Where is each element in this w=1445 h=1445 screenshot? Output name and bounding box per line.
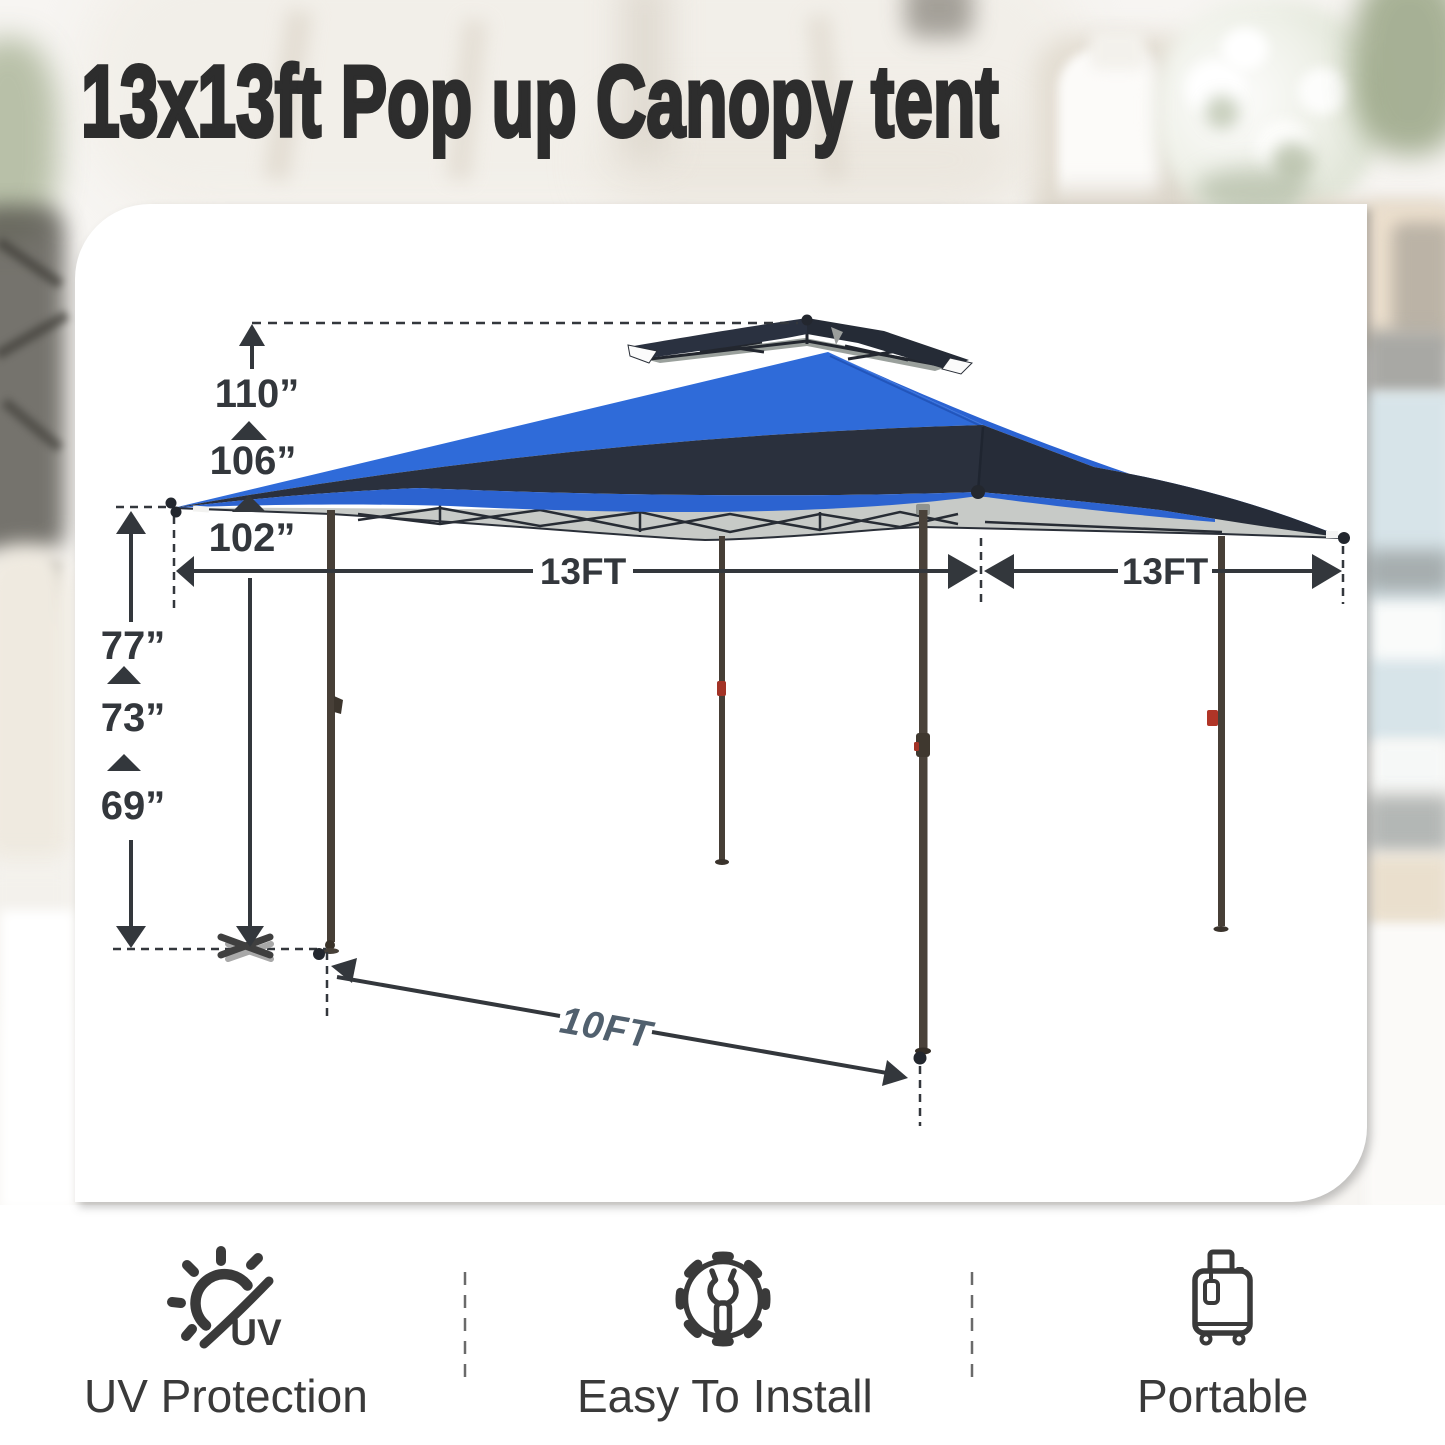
svg-text:106”: 106” bbox=[210, 439, 297, 483]
svg-text:10FT: 10FT bbox=[557, 999, 657, 1057]
svg-text:77”: 77” bbox=[101, 624, 166, 668]
svg-text:13FT: 13FT bbox=[1122, 551, 1209, 592]
svg-text:102”: 102” bbox=[209, 516, 296, 560]
svg-text:110”: 110” bbox=[215, 372, 300, 416]
svg-text:UV: UV bbox=[230, 1312, 282, 1353]
svg-text:73”: 73” bbox=[101, 696, 166, 740]
svg-text:13FT: 13FT bbox=[540, 551, 627, 592]
svg-text:69”: 69” bbox=[101, 784, 166, 828]
